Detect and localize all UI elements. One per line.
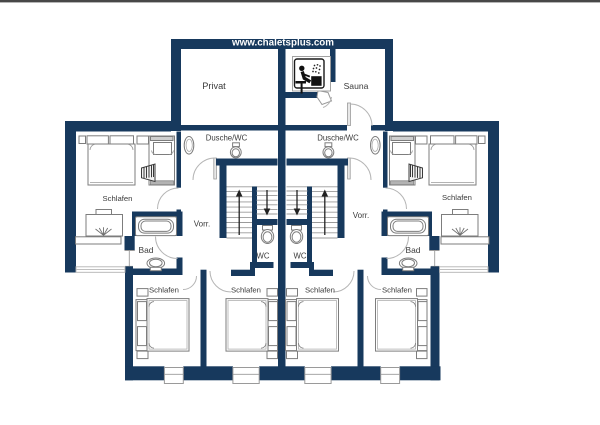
- svg-text:Schlafen: Schlafen: [103, 194, 133, 203]
- svg-text:WC: WC: [294, 252, 307, 261]
- svg-text:Schlafen: Schlafen: [149, 285, 179, 294]
- svg-text:www.chaletsplus.com: www.chaletsplus.com: [231, 38, 334, 49]
- svg-text:Schlafen: Schlafen: [231, 285, 261, 294]
- svg-text:WC: WC: [257, 252, 270, 261]
- svg-text:Schlafen: Schlafen: [382, 285, 412, 294]
- svg-text:Sauna: Sauna: [344, 81, 369, 91]
- svg-text:Privat: Privat: [202, 81, 226, 91]
- svg-text:Vorr.: Vorr.: [194, 220, 210, 229]
- svg-text:Bad: Bad: [139, 245, 154, 255]
- svg-text:Schlafen: Schlafen: [305, 285, 335, 294]
- svg-text:Bad: Bad: [406, 245, 421, 255]
- svg-text:Dusche/WC: Dusche/WC: [206, 133, 248, 142]
- svg-text:Vorr.: Vorr.: [353, 211, 369, 220]
- svg-text:Schlafen: Schlafen: [442, 193, 472, 202]
- svg-text:Dusche/WC: Dusche/WC: [317, 133, 359, 142]
